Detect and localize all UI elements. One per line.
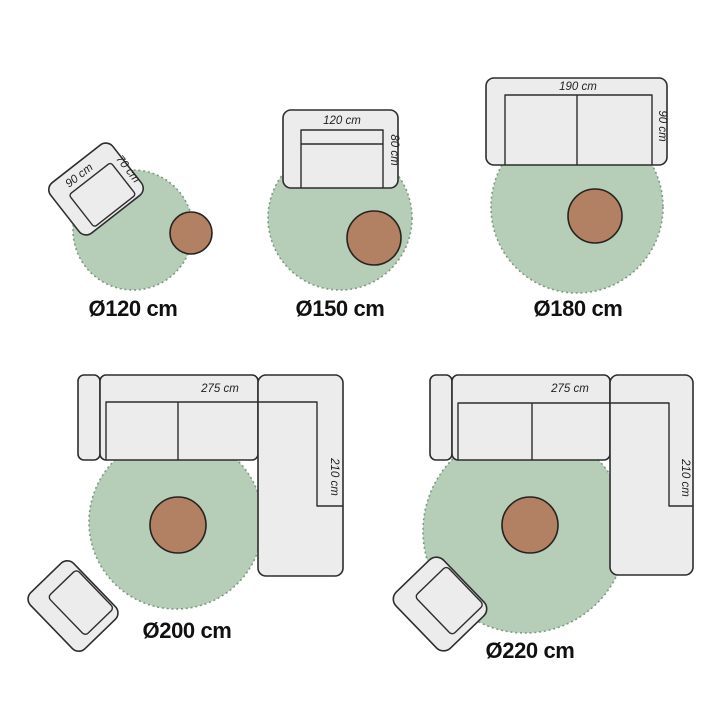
- side-table: [347, 211, 401, 265]
- rug-size-label: Ø150 cm: [296, 296, 385, 321]
- scene-rug-200: 275 cm 210 cm Ø200 cm: [24, 375, 343, 655]
- rug-size-label: Ø180 cm: [534, 296, 623, 321]
- side-table: [502, 497, 558, 553]
- scene-rug-220: 275 cm 210 cm Ø220 cm: [389, 375, 693, 663]
- rug-size-guide: 90 cm 70 cm Ø120 cm 120 cm 80 cm Ø150 cm…: [0, 0, 720, 720]
- side-table: [568, 189, 622, 243]
- rug-size-guide-diagram: 90 cm 70 cm Ø120 cm 120 cm 80 cm Ø150 cm…: [0, 0, 720, 720]
- scene-rug-150: 120 cm 80 cm Ø150 cm: [268, 110, 412, 321]
- sofa-armrest: [430, 375, 452, 460]
- side-table: [150, 497, 206, 553]
- sofa-depth-label: 90 cm: [656, 110, 668, 142]
- side-table: [170, 212, 212, 254]
- sofa-width-label: 275 cm: [200, 383, 239, 395]
- rug-size-label: Ø220 cm: [486, 638, 575, 663]
- sofa-width-label: 275 cm: [550, 383, 589, 395]
- scene-rug-180: 190 cm 90 cm Ø180 cm: [486, 78, 668, 321]
- sofa-armrest: [78, 375, 100, 460]
- sofa-depth-label: 80 cm: [388, 134, 400, 166]
- rug-size-label: Ø120 cm: [89, 296, 178, 321]
- sofa-depth-label: 210 cm: [328, 457, 340, 496]
- small-sofa: 120 cm 80 cm: [283, 110, 400, 188]
- two-seat-sofa: 190 cm 90 cm: [486, 78, 668, 165]
- sofa-depth-label: 210 cm: [679, 458, 691, 497]
- scene-rug-120: 90 cm 70 cm Ø120 cm: [45, 137, 212, 321]
- sofa-width-label: 190 cm: [559, 81, 597, 93]
- rug-size-label: Ø200 cm: [143, 618, 232, 643]
- sofa-width-label: 120 cm: [323, 115, 361, 127]
